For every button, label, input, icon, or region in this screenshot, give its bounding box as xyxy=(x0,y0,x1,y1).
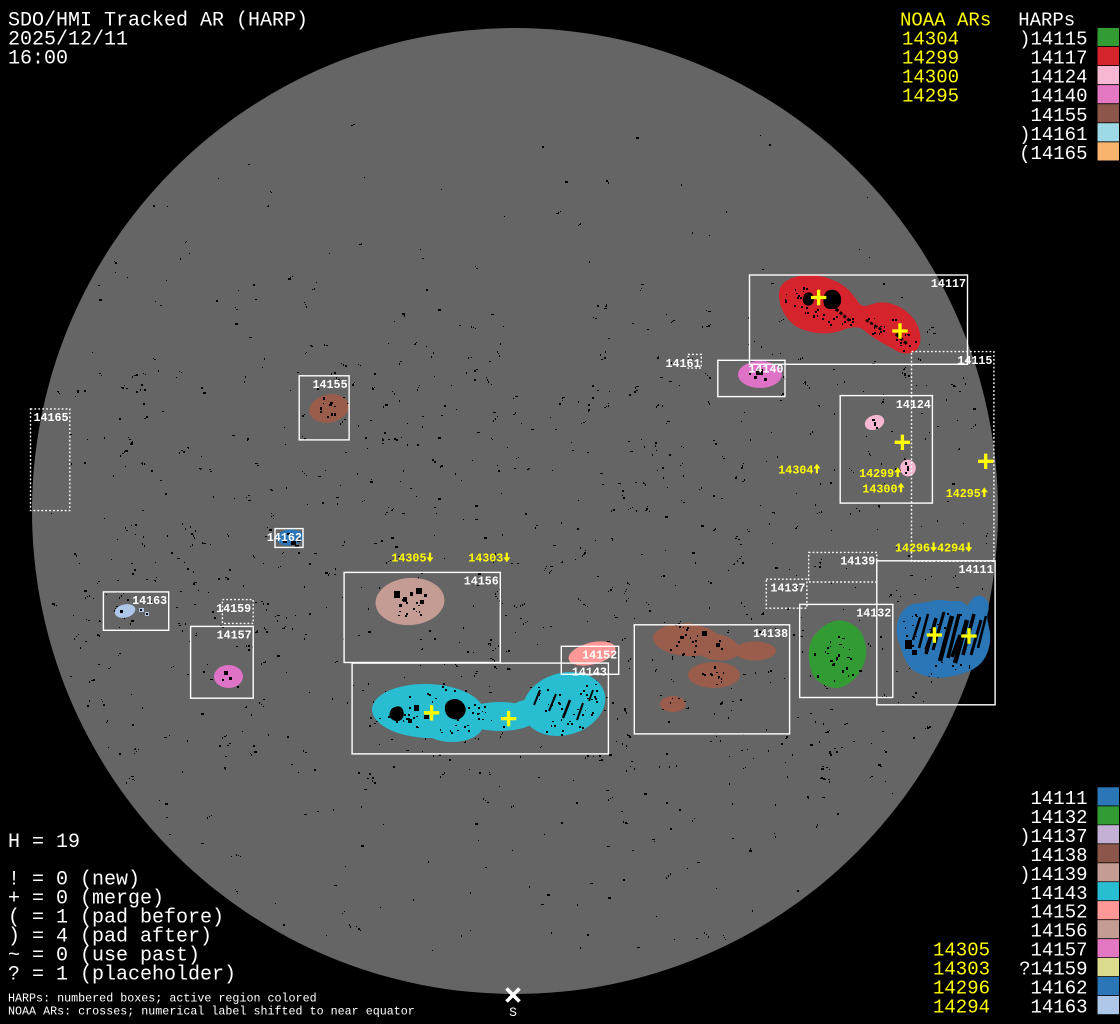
svg-text:14161: 14161 xyxy=(666,357,701,371)
svg-text:14157: 14157 xyxy=(217,629,252,643)
svg-text:14305: 14305 xyxy=(391,552,426,566)
svg-text:14139: 14139 xyxy=(840,555,875,569)
svg-text:16:00: 16:00 xyxy=(8,48,68,71)
svg-text:14115: 14115 xyxy=(957,354,992,368)
svg-text:14304: 14304 xyxy=(778,463,813,477)
svg-text:? = 1 (placeholder): ? = 1 (placeholder) xyxy=(8,964,236,987)
svg-text:14300: 14300 xyxy=(862,482,897,496)
svg-text:14159: 14159 xyxy=(216,602,251,616)
svg-text:14143: 14143 xyxy=(572,665,607,679)
svg-text:14296: 14296 xyxy=(895,542,930,556)
svg-text:14163: 14163 xyxy=(1030,997,1087,1019)
svg-text:14117: 14117 xyxy=(931,277,966,291)
svg-text:14303: 14303 xyxy=(468,552,503,566)
svg-text:14132: 14132 xyxy=(856,607,891,621)
svg-text:H = 19: H = 19 xyxy=(8,831,80,854)
svg-text:14163: 14163 xyxy=(132,594,167,608)
svg-text:14295: 14295 xyxy=(902,86,959,108)
svg-text:14295: 14295 xyxy=(946,487,981,501)
svg-text:14294: 14294 xyxy=(933,997,990,1019)
svg-text:14165: 14165 xyxy=(34,411,69,425)
svg-text:14152: 14152 xyxy=(582,649,617,663)
svg-text:14124: 14124 xyxy=(896,398,931,412)
svg-text:NOAA ARs: crosses; numerical l: NOAA ARs: crosses; numerical label shift… xyxy=(8,1005,415,1019)
svg-text:14299: 14299 xyxy=(859,467,894,481)
svg-text:14140: 14140 xyxy=(748,363,783,377)
svg-text:S: S xyxy=(509,1005,517,1020)
svg-text:14156: 14156 xyxy=(464,575,499,589)
svg-text:14111: 14111 xyxy=(959,563,994,577)
svg-text:4294: 4294 xyxy=(937,542,965,556)
svg-text:14137: 14137 xyxy=(770,581,805,595)
svg-text:14162: 14162 xyxy=(267,531,302,545)
svg-text:HARPs: numbered boxes; active: HARPs: numbered boxes; active region col… xyxy=(8,992,317,1006)
svg-text:(14165: (14165 xyxy=(1019,143,1087,165)
svg-text:14138: 14138 xyxy=(753,627,788,641)
svg-text:14155: 14155 xyxy=(313,378,348,392)
